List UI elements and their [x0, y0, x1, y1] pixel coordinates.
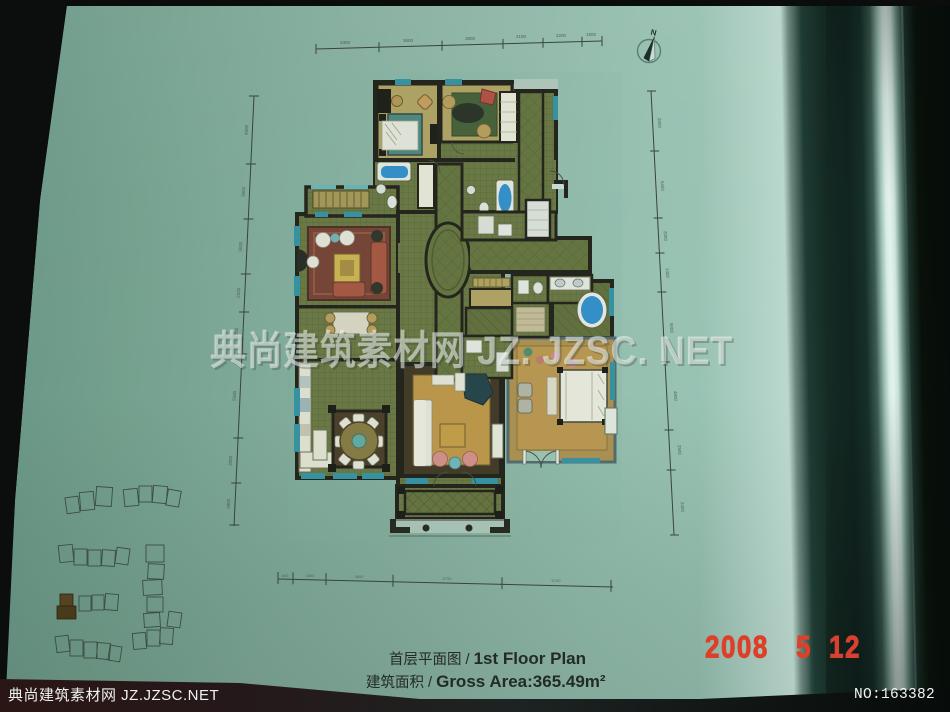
svg-text:3300: 3300: [340, 40, 351, 45]
svg-text:首层平面图 / 1st Floor Plan: 首层平面图 / 1st Floor Plan: [389, 649, 586, 668]
svg-text:3600: 3600: [241, 186, 247, 197]
svg-text:典尚建筑素材网 JZ. JZSC. NET: 典尚建筑素材网 JZ. JZSC. NET: [210, 329, 733, 373]
svg-text:2800: 2800: [226, 498, 232, 509]
svg-text:5400: 5400: [660, 181, 666, 192]
svg-text:1800: 1800: [306, 573, 316, 578]
svg-text:3600: 3600: [403, 38, 414, 43]
svg-text:N: N: [650, 28, 658, 38]
svg-text:3600: 3600: [238, 241, 244, 252]
svg-text:2100: 2100: [516, 34, 527, 39]
svg-text:2500: 2500: [677, 445, 683, 456]
svg-text:1400: 1400: [665, 268, 671, 279]
svg-text:2400: 2400: [680, 502, 686, 513]
svg-text:5700: 5700: [443, 576, 453, 581]
svg-text:3000: 3000: [228, 455, 234, 466]
svg-text:2000: 2000: [663, 231, 669, 242]
svg-text:2500: 2500: [236, 287, 242, 298]
svg-text:5500: 5500: [232, 390, 238, 401]
svg-text:5700: 5700: [552, 578, 562, 583]
svg-text:3600: 3600: [355, 574, 365, 579]
svg-text:2200: 2200: [556, 33, 567, 38]
svg-text:3900: 3900: [465, 36, 476, 41]
svg-text:800: 800: [282, 573, 289, 578]
svg-text:1500: 1500: [586, 32, 597, 37]
svg-text:4800: 4800: [673, 391, 679, 402]
svg-text:4500: 4500: [244, 124, 250, 135]
svg-text:2800: 2800: [657, 118, 663, 129]
